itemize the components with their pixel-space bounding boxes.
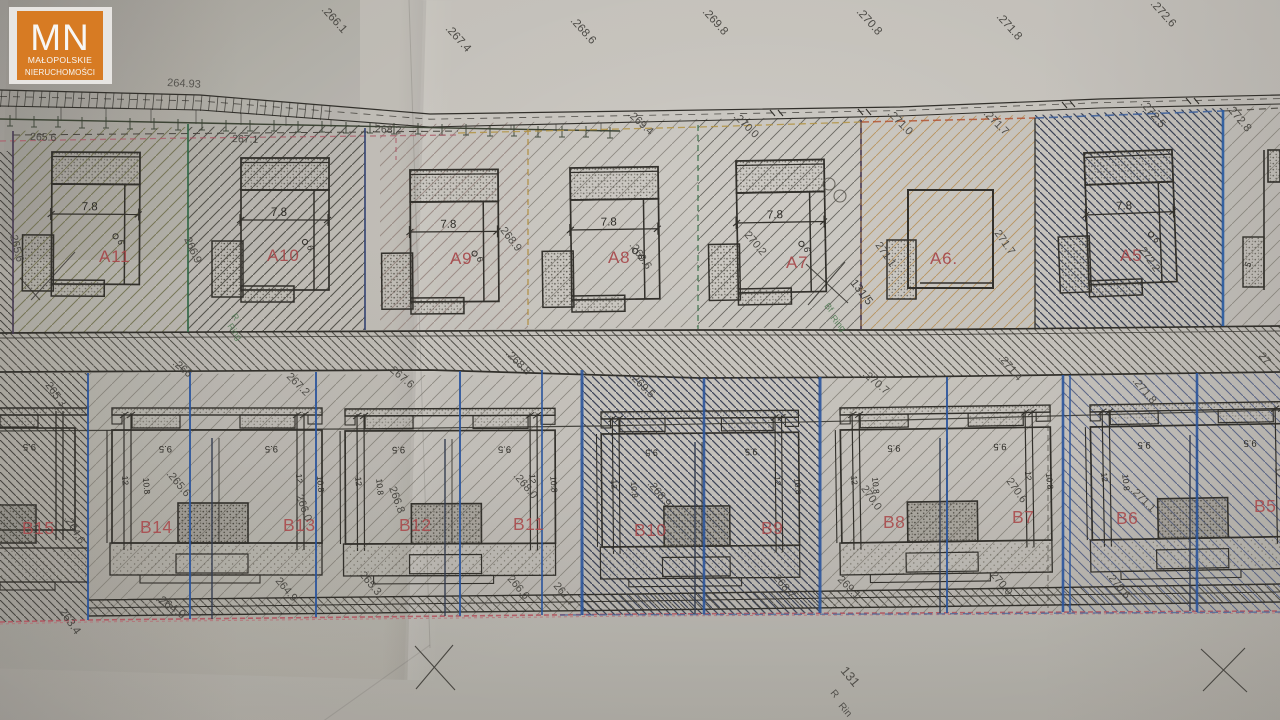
svg-text:B8: B8 [883,512,905,532]
svg-text:A7: A7 [786,253,808,272]
svg-text:B14: B14 [140,517,173,537]
svg-text:A6.: A6. [930,249,958,268]
svg-text:B9: B9 [761,518,783,538]
svg-text:NIERUCHOMOŚCI: NIERUCHOMOŚCI [25,68,95,77]
svg-text:B12: B12 [399,515,432,535]
svg-text:B11: B11 [513,514,544,534]
svg-text:B6: B6 [1116,508,1138,528]
svg-text:MN: MN [30,17,90,58]
svg-text:265.6: 265.6 [30,131,57,144]
svg-text:264.93: 264.93 [167,77,201,91]
svg-text:A10: A10 [267,246,300,265]
svg-text:B5: B5 [1254,496,1276,516]
svg-text:A11: A11 [99,247,130,266]
svg-text:A8: A8 [608,248,630,267]
svg-text:267.1: 267.1 [232,133,259,146]
svg-text:MAŁOPOLSKIE: MAŁOPOLSKIE [28,55,92,65]
svg-text:B7: B7 [1012,507,1034,527]
svg-text:9.5: 9.5 [23,441,36,452]
svg-text:A9: A9 [450,249,472,268]
svg-text:.268.2: .268.2 [372,123,402,137]
svg-text:B10: B10 [634,520,667,540]
svg-text:B15: B15 [22,518,55,538]
